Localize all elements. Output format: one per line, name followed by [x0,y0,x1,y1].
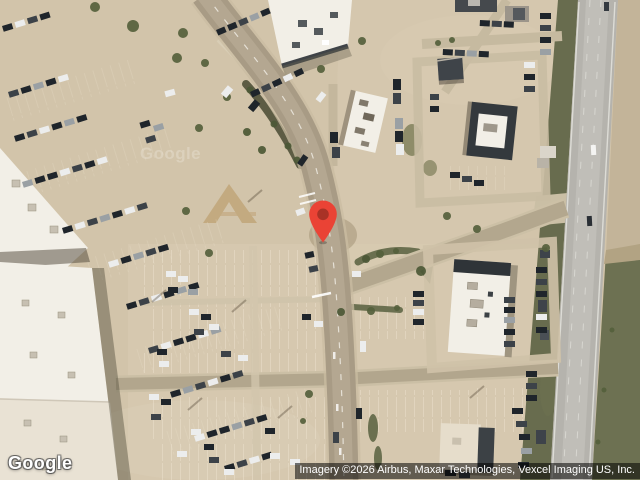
small-dark-building [437,57,464,85]
northeast-building-roof [462,101,517,160]
map-viewport[interactable]: Google Google Imagery ©2026 Airbus, Maxa… [0,0,640,480]
location-marker[interactable] [306,199,340,245]
imagery-attribution: Imagery ©2026 Airbus, Maxar Technologies… [295,463,640,479]
google-logo[interactable]: Google [8,453,72,474]
map-pin-icon [306,199,340,245]
